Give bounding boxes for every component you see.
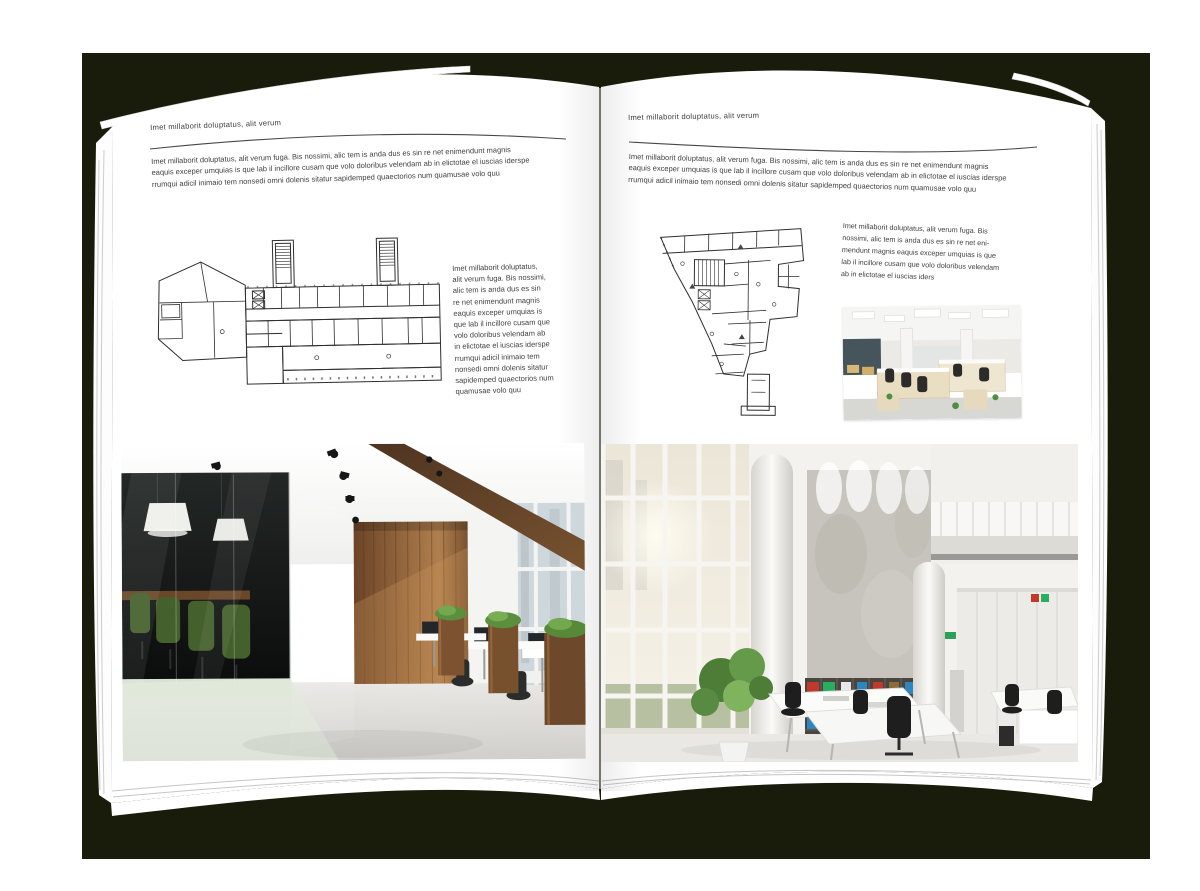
floor-plan-walls — [156, 237, 441, 386]
floor — [843, 397, 1021, 420]
page-stack-right — [1091, 108, 1108, 788]
lounge-chair — [847, 365, 859, 373]
brochure-mockup-scene: Imet millaborit doluptatus, alit verum I… — [0, 0, 1200, 891]
right-page-photo-atrium-office — [601, 444, 1078, 762]
lounge-chair — [862, 367, 874, 375]
right-page-photo-small-office — [842, 305, 1021, 420]
right-floor-plan-drawing — [651, 223, 811, 416]
mezzanine-balcony — [931, 444, 1078, 564]
left-page-photo-office-interior — [121, 443, 586, 761]
left-floor-plan-drawing — [154, 235, 447, 407]
left-page-caption: Imet millaborit doluptatus, alit verum f… — [452, 259, 601, 397]
concrete-wall — [807, 460, 931, 678]
right-page-caption: Imet millaborit doluptatus, alit verum f… — [841, 220, 1033, 287]
glass-facade — [601, 444, 749, 762]
floor-plan-walls — [659, 227, 804, 415]
glass-meeting-room — [121, 472, 290, 697]
